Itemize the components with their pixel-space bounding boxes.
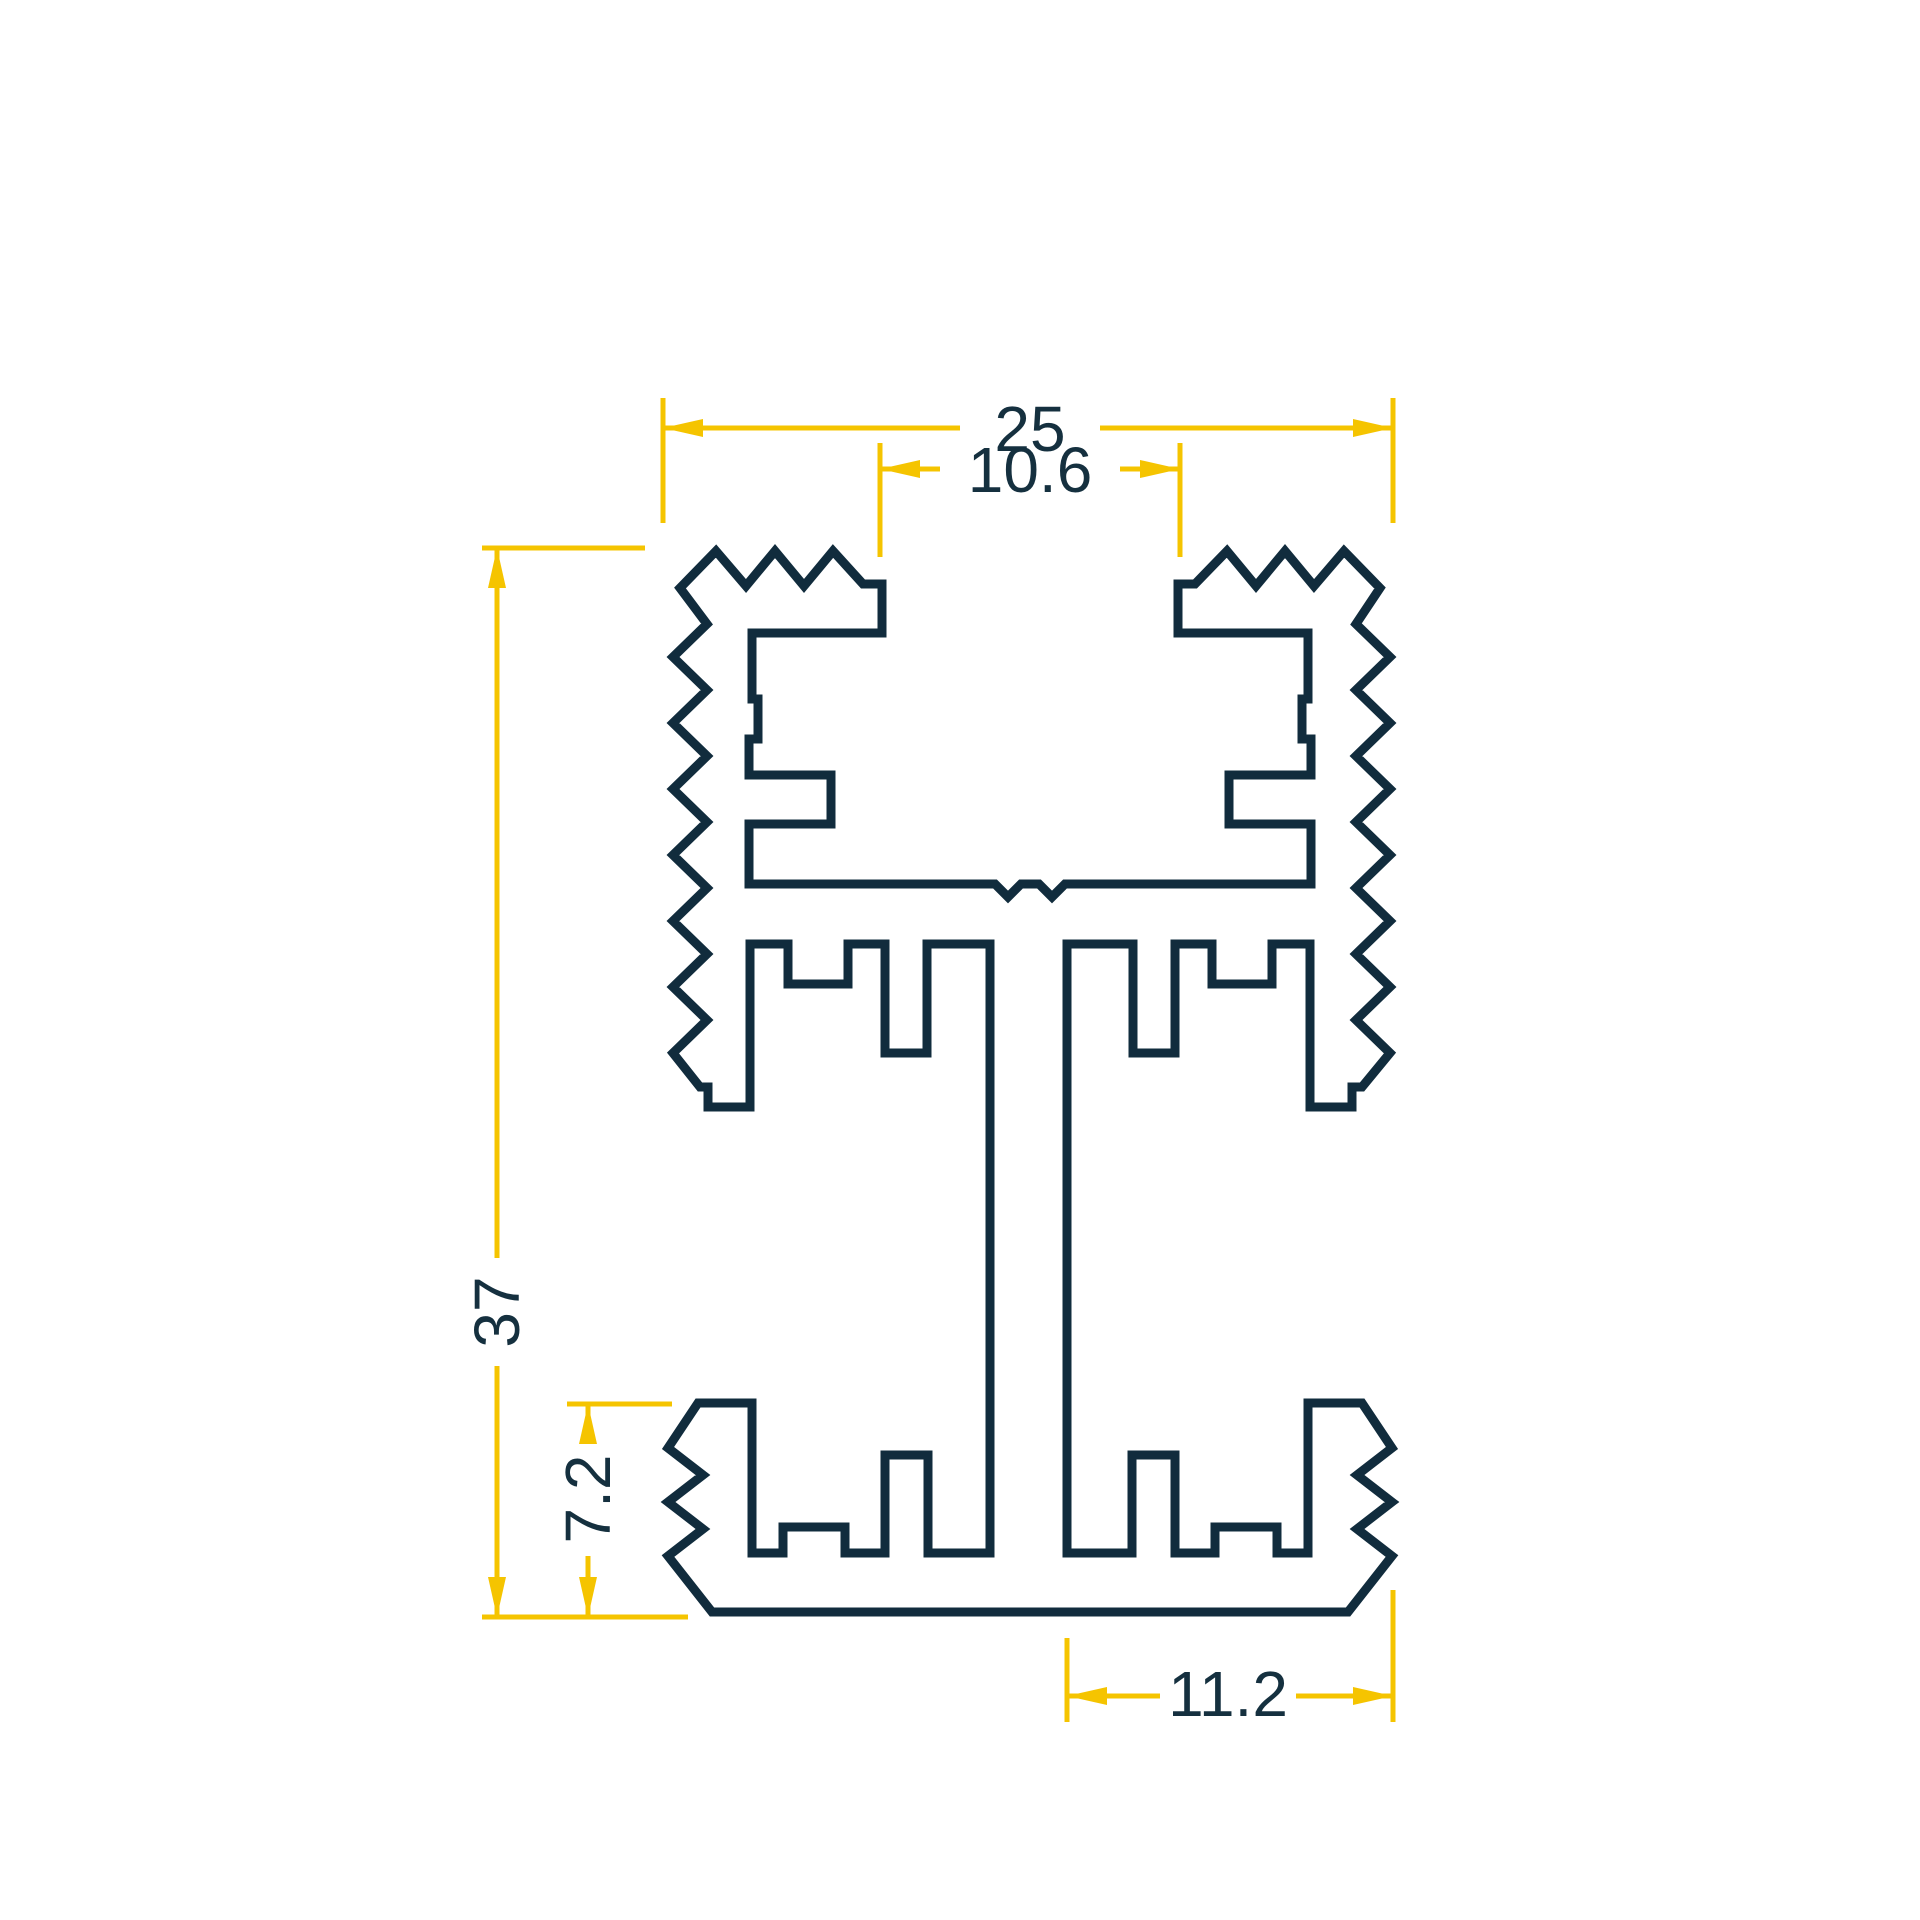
- dim-channel-opening-label: 10.6: [968, 434, 1093, 506]
- dim-base-height-label: 7.2: [552, 1455, 624, 1544]
- profile-drawing-canvas: 2510.6377.211.2: [0, 0, 1920, 1920]
- dim-overall-height-label: 37: [461, 1276, 533, 1347]
- drawing-svg: 2510.6377.211.2: [0, 0, 1920, 1920]
- dim-base-half-width-label: 11.2: [1168, 1658, 1288, 1730]
- drawing-background: [0, 0, 1920, 1920]
- technical-drawing-page: 2510.6377.211.2: [0, 0, 1920, 1920]
